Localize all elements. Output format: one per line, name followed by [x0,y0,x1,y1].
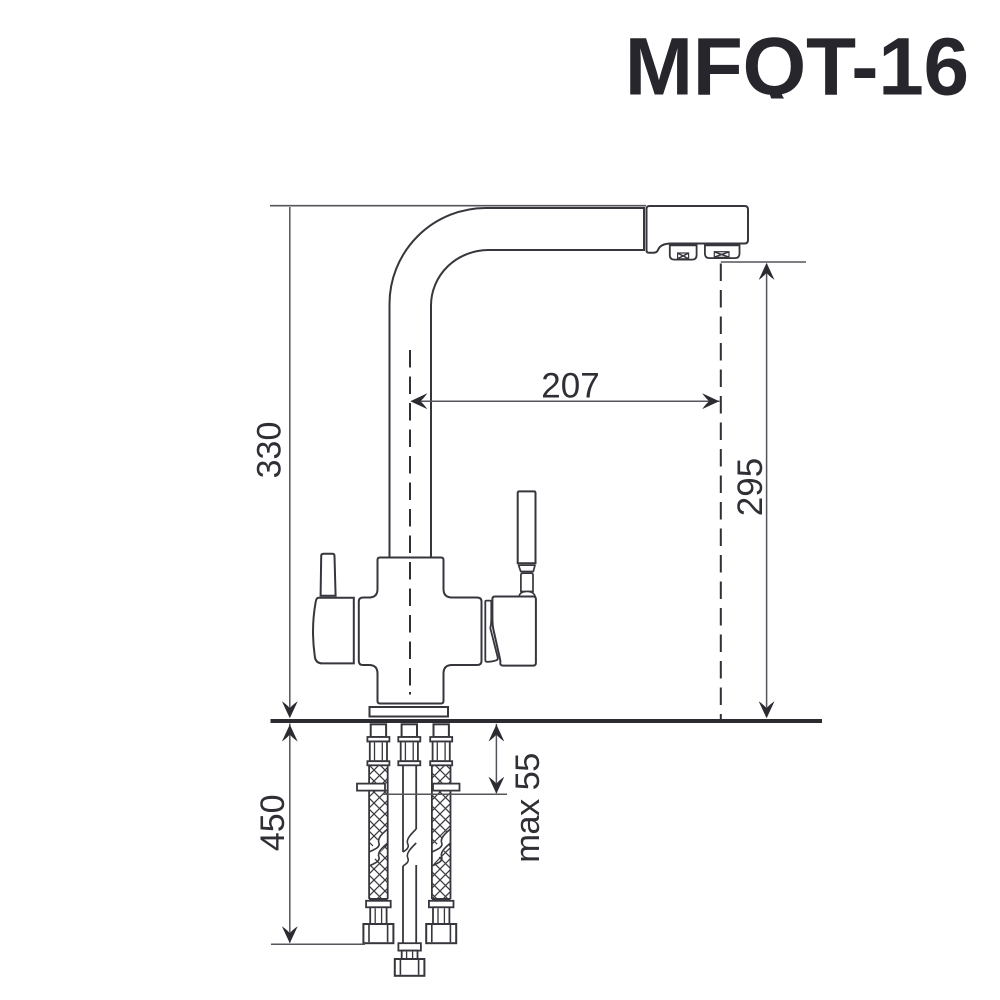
svg-text:MFQT-16: MFQT-16 [625,22,969,113]
svg-text:450: 450 [254,794,292,851]
svg-text:207: 207 [541,367,599,406]
svg-text:295: 295 [731,458,770,516]
svg-text:330: 330 [251,422,289,479]
svg-text:max 55: max 55 [509,753,547,863]
